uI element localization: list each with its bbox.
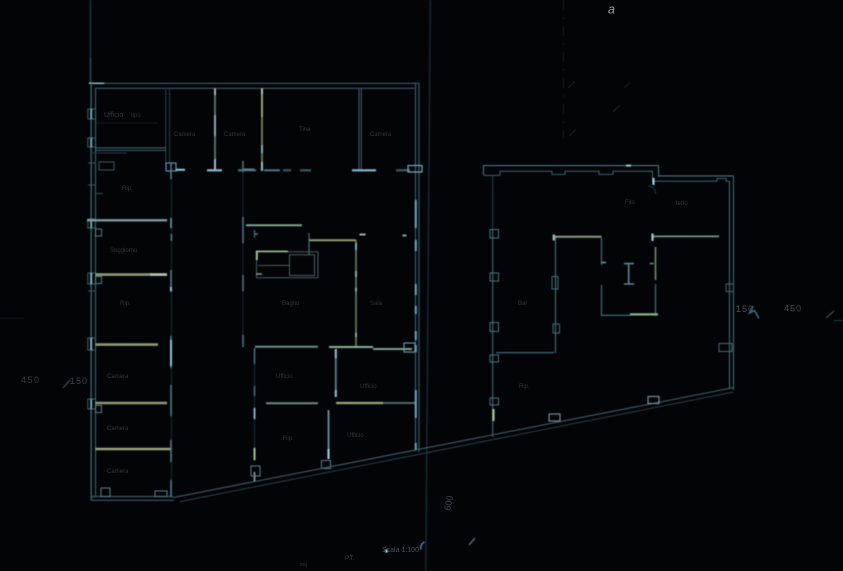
svg-text:Camera: Camera <box>174 132 196 138</box>
svg-text:tetto: tetto <box>676 201 688 207</box>
svg-text:Ufficio: Ufficio <box>276 374 293 380</box>
svg-text:150: 150 <box>736 304 754 314</box>
svg-text:Bar: Bar <box>518 301 527 307</box>
svg-text:Camera: Camera <box>107 374 129 380</box>
svg-text:Camera: Camera <box>107 469 129 475</box>
svg-text:Ufficio: Ufficio <box>104 112 123 119</box>
svg-text:Tina: Tina <box>299 127 311 133</box>
svg-text:Rip.: Rip. <box>519 384 530 390</box>
svg-text:Ufficio: Ufficio <box>360 384 377 390</box>
svg-text:Camera: Camera <box>107 426 129 432</box>
svg-text:Camera: Camera <box>370 132 392 138</box>
svg-text:P.T.: P.T. <box>345 556 355 562</box>
svg-text:Filo: Filo <box>625 200 635 206</box>
svg-text:450: 450 <box>21 375 41 385</box>
svg-text:150: 150 <box>70 376 88 386</box>
svg-text:tipo: tipo <box>131 113 141 119</box>
svg-text:450: 450 <box>784 304 802 314</box>
svg-text:Sala: Sala <box>370 301 383 307</box>
svg-text:Rip.: Rip. <box>120 301 131 307</box>
svg-text:Scala 1:100: Scala 1:100 <box>382 547 419 554</box>
svg-text:Rip.: Rip. <box>122 186 133 192</box>
svg-text:Ufficio: Ufficio <box>347 433 364 439</box>
svg-text:Rip.: Rip. <box>283 436 294 442</box>
svg-text:mq: mq <box>300 562 307 568</box>
svg-text:a: a <box>608 3 615 17</box>
svg-text:Bagno: Bagno <box>282 301 300 307</box>
svg-text:Camera: Camera <box>224 132 246 138</box>
svg-text:Soggiorno: Soggiorno <box>110 248 138 254</box>
